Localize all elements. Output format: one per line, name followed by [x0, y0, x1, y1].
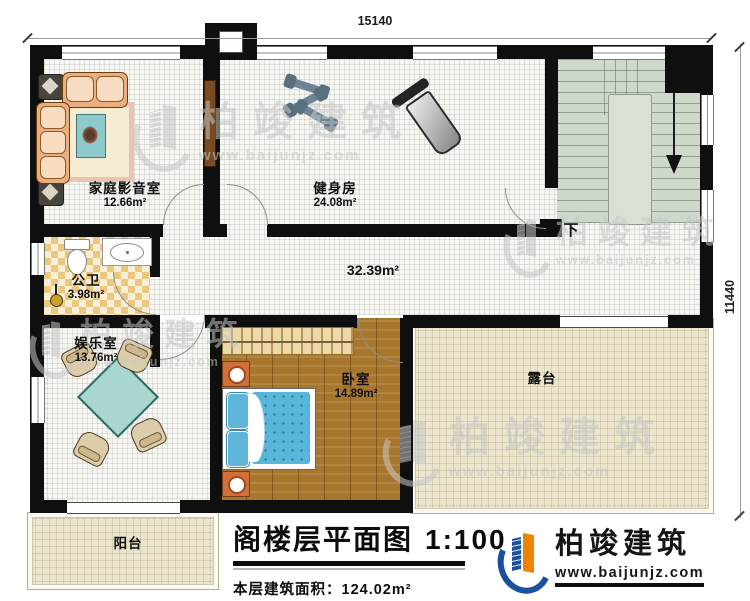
terrace-floor	[410, 318, 714, 514]
wall	[203, 224, 227, 237]
stair-steps-left-flight	[557, 112, 608, 223]
floor-area-value: 124.02m²	[342, 582, 412, 598]
speaker-icon	[38, 74, 64, 100]
baijun-logo-icon	[498, 530, 546, 586]
wall	[545, 57, 558, 188]
dimension-label-top: 15140	[325, 14, 425, 28]
room-label-bathroom: 公卫 3.98m²	[49, 273, 123, 303]
window	[701, 95, 714, 145]
wall	[30, 500, 67, 513]
sliding-door	[560, 316, 668, 328]
sofa-cushion	[40, 106, 66, 129]
wall	[210, 315, 222, 513]
title-block: 阁楼层平面图 1:100 本层建筑面积：124.02m²	[233, 518, 507, 599]
room-label-entertainment: 娱乐室 13.76m²	[54, 336, 138, 366]
hallway-area-label: 32.39m²	[321, 261, 425, 280]
wardrobe-symbol	[222, 327, 354, 355]
sliding-door	[67, 502, 180, 514]
title-underline	[233, 561, 465, 566]
logo-url: www.baijunjz.com	[555, 565, 704, 581]
sink-symbol	[110, 243, 144, 262]
sofa-cushion	[40, 156, 66, 179]
chimney-flue	[219, 31, 243, 53]
title-underline-shadow	[233, 568, 465, 570]
window	[31, 243, 45, 275]
stairs-down-label: 下	[556, 221, 586, 240]
room-label-balcony: 阳台	[86, 536, 170, 552]
room-label-bedroom: 卧室 14.89m²	[304, 372, 408, 402]
nightstand-symbol	[222, 361, 250, 387]
dimension-line-top	[28, 38, 712, 39]
wall	[668, 315, 713, 328]
dimension-label-right: 11440	[723, 267, 737, 327]
wall	[700, 45, 713, 318]
pillow	[227, 431, 249, 467]
floor-plan-canvas: 柏竣建筑 www.baijunjz.com 柏竣建筑 www.baijunjz.…	[0, 0, 750, 601]
wall	[30, 315, 160, 328]
stair-landing	[608, 94, 652, 225]
wall	[210, 500, 413, 513]
wall	[150, 315, 160, 367]
sofa-cushion	[66, 76, 94, 102]
dumbbells-symbol	[280, 74, 345, 137]
sofa-cushion	[96, 76, 124, 102]
sofa-cushion	[40, 131, 66, 154]
wall	[267, 224, 545, 237]
window	[31, 377, 45, 423]
logo-name: 柏竣建筑	[555, 530, 704, 559]
window	[62, 46, 180, 60]
window	[593, 46, 665, 60]
window	[701, 190, 714, 242]
plan-scale: 1:100	[425, 524, 507, 556]
table-decor	[82, 126, 98, 144]
wall	[180, 500, 210, 513]
nightstand-symbol	[222, 471, 250, 497]
stair-down-arrow-icon	[666, 155, 682, 174]
room-label-home-theater: 家庭影音室 12.66m²	[60, 181, 190, 211]
floor-area-label: 本层建筑面积：	[233, 582, 342, 598]
logo-underline	[555, 583, 704, 587]
dimension-line-right	[740, 44, 741, 518]
window	[413, 46, 497, 60]
plan-title: 阁楼层平面图	[233, 518, 413, 558]
wall	[403, 315, 560, 328]
window	[257, 46, 327, 60]
pillow	[227, 393, 249, 429]
room-label-terrace: 露台	[500, 371, 584, 387]
room-label-gym: 健身房 24.08m²	[283, 181, 387, 211]
company-logo: 柏竣建筑 www.baijunjz.com	[498, 530, 704, 587]
pocket-door-leaf	[204, 80, 216, 167]
wall	[30, 224, 163, 237]
